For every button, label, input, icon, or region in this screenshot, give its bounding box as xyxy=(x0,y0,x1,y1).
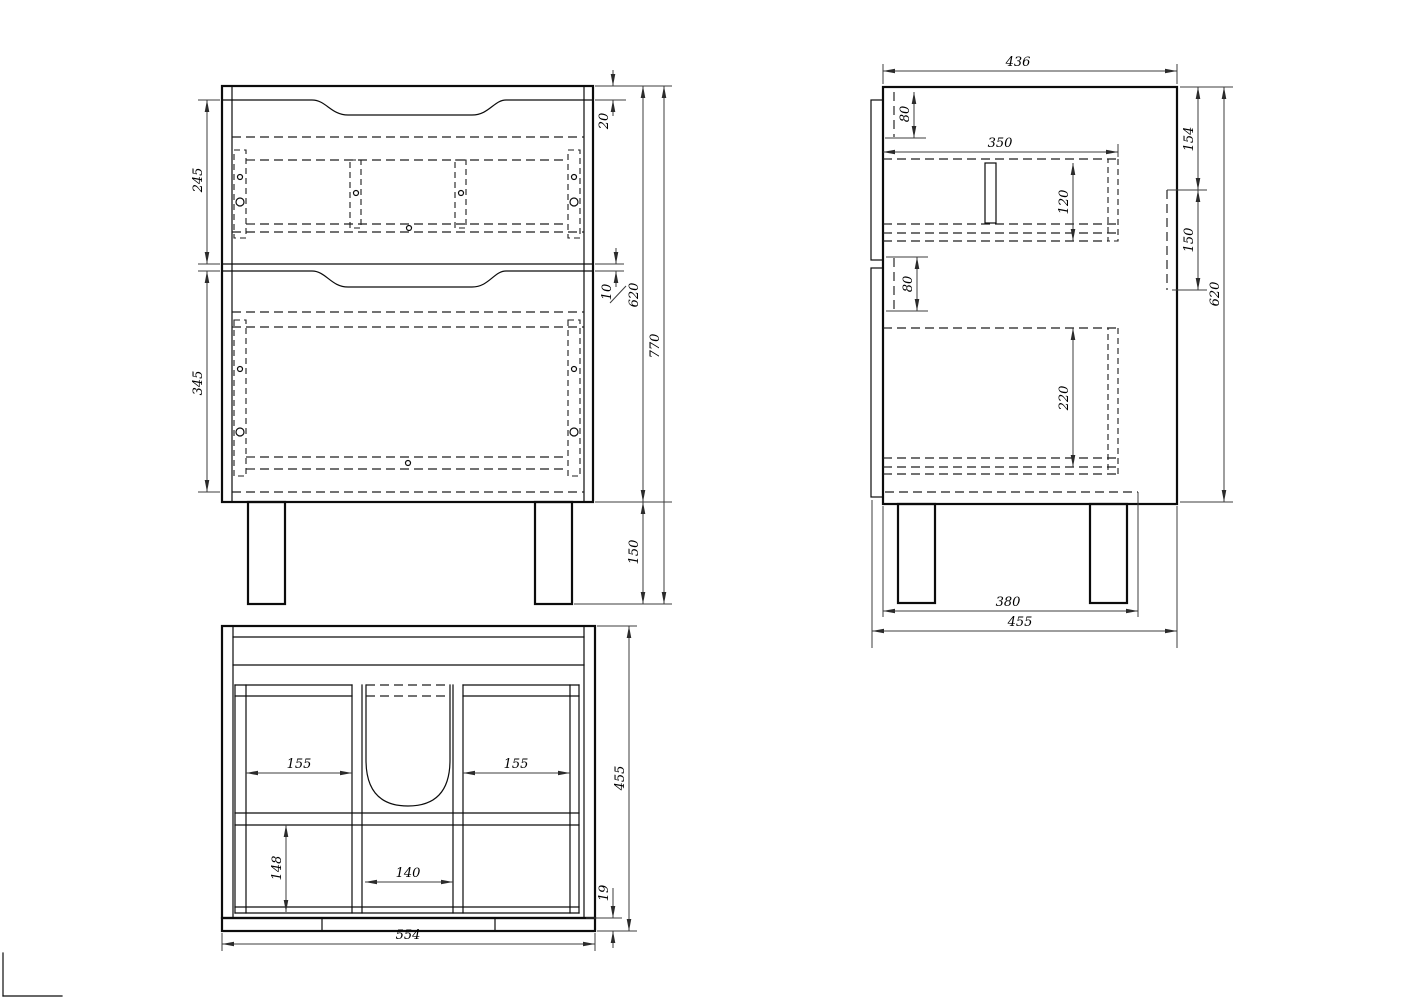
dim-side-leg-spacing: 380 xyxy=(996,595,1021,610)
dim-side-top-offset: 154 xyxy=(1182,127,1197,152)
dim-top-rear-bay: 148 xyxy=(270,856,285,881)
front-left-leg xyxy=(248,502,285,604)
front-view-dimensions: 245 345 20 10 620 770 150 xyxy=(191,70,672,604)
dim-front-carcass-height: 620 xyxy=(627,283,642,308)
dim-side-drawer-depth: 350 xyxy=(988,136,1013,151)
side-back-leg xyxy=(1090,504,1127,603)
dim-front-overall-height: 770 xyxy=(648,334,663,359)
dim-top-center-bay: 140 xyxy=(396,866,421,881)
dim-side-bracket-height: 150 xyxy=(1182,228,1197,253)
dim-front-drawer1-height: 245 xyxy=(191,168,206,194)
dim-side-top-hole-offset: 80 xyxy=(898,106,913,123)
dim-front-drawer2-height: 345 xyxy=(191,371,206,396)
dim-side-drawer2-box-height: 220 xyxy=(1057,386,1072,412)
dim-front-leg-height: 150 xyxy=(627,540,642,565)
sheet-corner-mark xyxy=(3,953,62,996)
front-view-outline xyxy=(222,86,593,604)
drawing-sheet: 245 345 20 10 620 770 150 xyxy=(0,0,1413,1000)
dim-side-lower-hole-offset: 80 xyxy=(901,276,916,293)
side-view: 436 80 350 154 150 620 80 xyxy=(871,55,1233,648)
side-drawer1-front-edge xyxy=(871,100,883,260)
dim-top-overall-depth: 455 xyxy=(613,766,628,792)
dim-side-carcass-height: 620 xyxy=(1208,282,1223,307)
front-view-hidden-lines xyxy=(232,137,584,492)
drawing-canvas: 245 345 20 10 620 770 150 xyxy=(0,0,1413,1000)
dim-top-back-panel: 19 xyxy=(597,885,612,902)
dim-top-left-bay: 155 xyxy=(287,757,312,772)
dim-front-drawer-gap: 10 xyxy=(600,284,615,301)
front-right-leg xyxy=(535,502,572,604)
side-drawer2-front-edge xyxy=(871,268,883,497)
dim-top-overall-width: 554 xyxy=(396,928,421,943)
dim-front-top-rail: 20 xyxy=(597,113,612,131)
front-view: 245 345 20 10 620 770 150 xyxy=(191,70,672,604)
top-view-outline xyxy=(222,626,595,931)
dim-side-overall-depth: 455 xyxy=(1007,615,1033,630)
side-front-leg xyxy=(898,504,935,603)
dim-side-carcass-depth: 436 xyxy=(1005,55,1031,70)
dim-top-right-bay: 155 xyxy=(504,757,529,772)
top-view: 155 155 148 140 455 19 554 xyxy=(222,626,637,951)
side-view-dimensions: 436 80 350 154 150 620 80 xyxy=(872,55,1233,648)
sink-cutout xyxy=(366,685,450,806)
top-view-dimensions: 155 155 148 140 455 19 554 xyxy=(222,626,637,951)
dim-side-drawer1-box-height: 120 xyxy=(1057,190,1072,215)
side-view-outline xyxy=(871,87,1177,603)
